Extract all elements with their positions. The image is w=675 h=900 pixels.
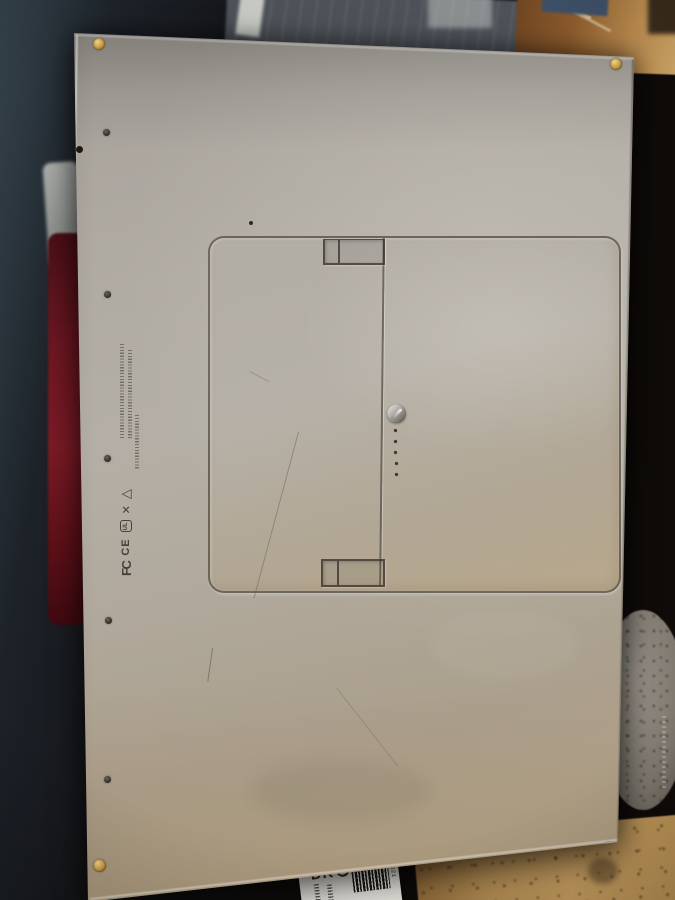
photo-vignette: [0, 0, 675, 900]
photo-canvas: DK 400521: [0, 0, 675, 900]
